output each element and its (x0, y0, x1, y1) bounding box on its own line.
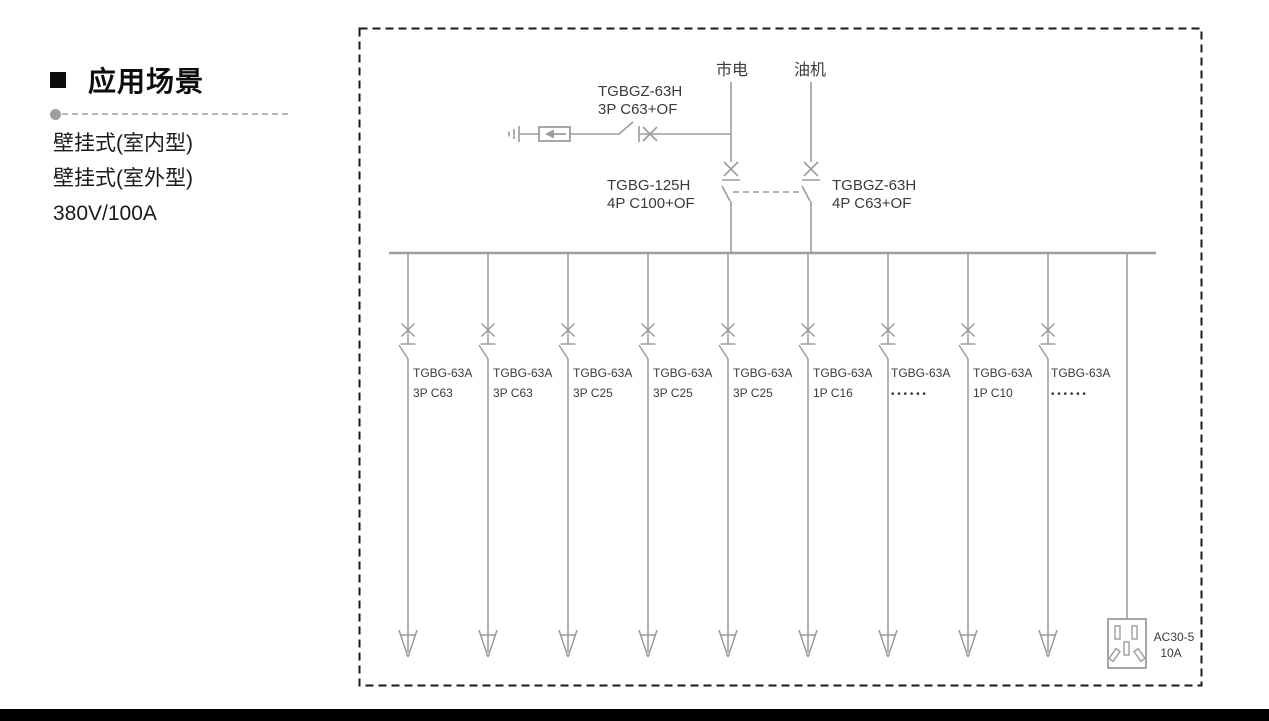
branch-spec-label: 1P C16 (813, 386, 853, 400)
spd-branch (509, 122, 731, 142)
branch-model-label: TGBG-63A (813, 366, 872, 380)
branch-breaker-icon (719, 253, 737, 657)
branch-breaker-icon (799, 253, 817, 657)
mains-source-label: 市电 (716, 61, 748, 79)
branch-circuit-8: TGBG-63A 1P C10 (959, 253, 1032, 657)
diagram-dashed-border (360, 29, 1202, 686)
spd-breaker-model-label: TGBGZ-63H (598, 83, 682, 100)
branch-spec-label: 3P C63 (413, 386, 453, 400)
branch-spec-label: • • • • • • (891, 389, 926, 400)
branch-model-label: TGBG-63A (891, 366, 950, 380)
branch-circuit-6: TGBG-63A 1P C16 (799, 253, 872, 657)
single-line-diagram: 市电 油机 TGBGZ-63H 3P (0, 0, 1269, 721)
branch-spec-label: 3P C25 (733, 386, 773, 400)
branch-model-label: TGBG-63A (573, 366, 632, 380)
generator-breaker-spec-label: 4P C63+OF (832, 195, 911, 212)
mains-breaker-spec-label: 4P C100+OF (607, 195, 695, 212)
branch-spec-label: 3P C25 (573, 386, 613, 400)
generator-breaker-icon (802, 82, 820, 253)
branch-spec-label: • • • • • • (1051, 389, 1086, 400)
spd-breaker-spec-label: 3P C63+OF (598, 101, 677, 118)
socket-model-label: AC30-5 (1154, 630, 1195, 644)
footer-bar (0, 709, 1269, 721)
branch-breaker-icon (879, 253, 897, 657)
branch-breaker-icon (1039, 253, 1057, 657)
branch-circuit-7: TGBG-63A • • • • • • (879, 253, 950, 657)
branch-spec-label: 1P C10 (973, 386, 1013, 400)
branch-breaker-icon (559, 253, 577, 657)
branch-circuit-5: TGBG-63A 3P C25 (719, 253, 792, 657)
socket-outlet-icon (1108, 619, 1146, 668)
branch-circuit-2: TGBG-63A 3P C63 (479, 253, 552, 657)
branch-breaker-icon (479, 253, 497, 657)
branch-model-label: TGBG-63A (653, 366, 712, 380)
branch-spec-label: 3P C63 (493, 386, 533, 400)
branch-breaker-icon (959, 253, 977, 657)
branch-breaker-icon (639, 253, 657, 657)
branch-circuit-1: TGBG-63A 3P C63 (399, 253, 472, 657)
branch-circuit-3: TGBG-63A 3P C25 (559, 253, 632, 657)
surge-protector-icon (539, 127, 570, 141)
mains-breaker-icon (722, 82, 740, 253)
generator-breaker-model-label: TGBGZ-63H (832, 177, 916, 194)
ground-icon (509, 126, 519, 142)
application-scenario-page: 应用场景 壁挂式(室内型) 壁挂式(室外型) 380V/100A (0, 0, 1269, 721)
branch-spec-label: 3P C25 (653, 386, 693, 400)
mains-breaker-model-label: TGBG-125H (607, 177, 690, 194)
branch-breaker-icon (399, 253, 417, 657)
spd-breaker-icon (619, 122, 657, 142)
generator-source-label: 油机 (794, 61, 826, 79)
branch-model-label: TGBG-63A (413, 366, 472, 380)
branch-model-label: TGBG-63A (493, 366, 552, 380)
branch-circuit-9: TGBG-63A • • • • • • (1039, 253, 1110, 657)
branch-model-label: TGBG-63A (973, 366, 1032, 380)
branch-model-label: TGBG-63A (1051, 366, 1110, 380)
branch-circuit-4: TGBG-63A 3P C25 (639, 253, 712, 657)
branch-model-label: TGBG-63A (733, 366, 792, 380)
socket-rating-label: 10A (1160, 646, 1181, 660)
